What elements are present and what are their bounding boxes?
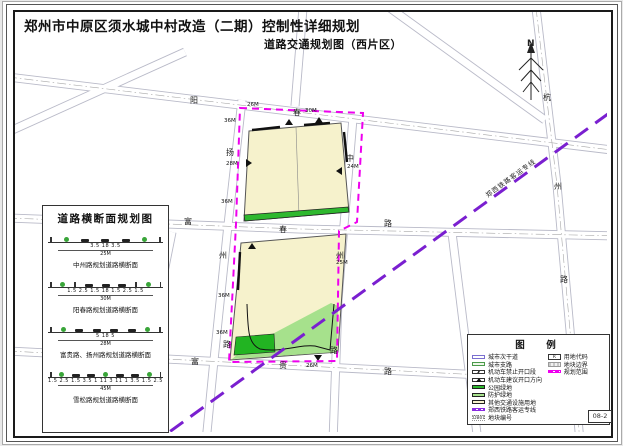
road-label: 阳 [190,96,198,105]
tree-icon [145,327,150,332]
tree-icon [146,282,151,287]
legend-item-planning-range: 规划范围 [548,368,605,376]
legend-label: 规划范围 [564,367,588,376]
cross-section-caption: 富贵路、扬州路规划道路横断面 [48,349,163,359]
park-green-swatch [472,385,485,389]
road-label: 春 [293,107,301,117]
dim-label: 28M [226,161,238,167]
plot-boundary-swatch [548,362,561,367]
pedestrian-icon [50,327,52,332]
car-icon [128,329,136,333]
pedestrian-icon [135,282,137,287]
other-traffic-swatch [472,400,485,404]
pedestrian-icon [159,327,161,332]
railway-swatch [472,408,485,411]
road-label: 路 [560,274,568,284]
cross-section-icons [48,278,163,288]
tree-icon [147,372,152,377]
car-icon [102,284,110,288]
road-label: 富 [191,356,199,366]
segment-widths: 3.5 18 3.5 [48,243,163,250]
road-label: 州 [219,251,227,260]
cross-section-panel-title: 道路横断面规划图 [48,211,163,226]
tree-icon [64,237,69,242]
road-label: 春 [279,224,287,234]
tree-icon [60,282,65,287]
total-width: 45M [58,385,153,392]
dim-label: 25M [336,260,348,266]
pedestrian-icon [159,237,161,242]
dim-label: 36M [221,199,233,205]
dim-label: 36M [218,293,230,299]
pedestrian-icon [50,282,52,287]
pedestrian-icon [160,282,162,287]
road-label: 路 [223,339,231,349]
branch-road-swatch [472,362,485,366]
road-label: 州 [336,251,344,260]
road-label: 扬 [226,147,234,157]
dim-label: 26M [247,102,259,108]
tree-icon [59,372,64,377]
road-label: 杭 [543,92,551,102]
cross-section-caption: 雪松路规划道路横断面 [48,394,163,404]
total-width: 28M [58,340,153,347]
road-label: 富 [184,216,192,226]
cross-section-icons [48,368,163,378]
pedestrian-icon [50,237,52,242]
car-icon [110,329,118,333]
total-width: 30M [58,295,153,302]
car-icon [122,239,130,243]
pedestrian-icon [160,372,162,377]
car-icon [87,374,95,378]
road-label: 路 [384,366,392,376]
segment-widths: 1.5 2.5 1.5 18 1.5 2.5 1.5 [48,288,163,295]
cross-section-fugui-yangzhou: 5 18 5 28M 富贵路、扬州路规划道路横断面 [48,323,163,359]
car-icon [72,374,80,378]
road-label: 路 [330,345,338,355]
pedestrian-icon [50,372,52,377]
planning-range-swatch [548,370,561,373]
car-icon [131,374,139,378]
dim-label: 36M [216,330,228,336]
no-opening-swatch [472,370,485,374]
secondary-road-swatch [472,355,485,359]
car-icon [81,239,89,243]
total-width: 25M [58,250,153,257]
plot-number-swatch: DB01 [472,415,485,421]
car-icon [85,284,93,288]
car-icon [118,284,126,288]
cross-section-icons [48,323,163,333]
cross-section-caption: 中州路规划道路横断面 [48,259,163,269]
tree-icon [142,237,147,242]
cross-section-caption: 阳春路规划道路横断面 [48,304,163,314]
car-icon [93,329,101,333]
cross-section-panel: 道路横断面规划图 3.5 18 3.5 25M 中州路规划道路横断面 1.5 2… [42,205,169,433]
drawing-title: 郑州市中原区须水城中村改造（二期）控制性详细规划 [24,15,444,35]
dim-label: 36M [224,118,236,124]
legend-label: 地块编号 [488,413,512,422]
protect-green-swatch [472,393,485,397]
land-code-swatch: R [548,354,561,360]
legend-item-plot-number: DB01 地块编号 [472,414,548,422]
road-label: 贵 [279,360,287,370]
tree-icon [61,327,66,332]
car-icon [101,239,109,243]
road-label: 州 [554,182,562,191]
dim-label: 26M [306,363,318,369]
cross-section-yangchun: 1.5 2.5 1.5 18 1.5 2.5 1.5 30M 阳春路规划道路横断… [48,278,163,314]
dim-label: 24M [347,164,359,170]
legend-left-column: 城市次干道 城市支路 机动车禁止开口段 机动车建议开口方向 公园绿地 防护绿地 [472,353,548,421]
cross-section-zhongzhou: 3.5 18 3.5 25M 中州路规划道路横断面 [48,233,163,269]
tree-icon [103,372,108,377]
car-icon [75,329,83,333]
dim-label: 30M [305,108,317,114]
car-icon [116,374,124,378]
cross-section-icons [48,233,163,243]
pedestrian-icon [74,282,76,287]
road-label: 中 [346,153,354,163]
drawing-subtitle: 道路交通规划图（西片区） [24,36,402,52]
opening-direction-swatch [472,378,485,382]
legend-title: 图 例 [472,337,605,351]
sheet-number: 08-2 [588,410,612,423]
cross-section-xuesong: 1.5 2.5 1.5 3.5 1 11 3 11 1 3.5 1.5 2.5 … [48,368,163,404]
segment-widths: 5 18 5 [48,333,163,340]
segment-widths: 1.5 2.5 1.5 3.5 1 11 3 11 1 3.5 1.5 2.5 … [48,378,163,385]
road-label: 路 [384,218,392,228]
